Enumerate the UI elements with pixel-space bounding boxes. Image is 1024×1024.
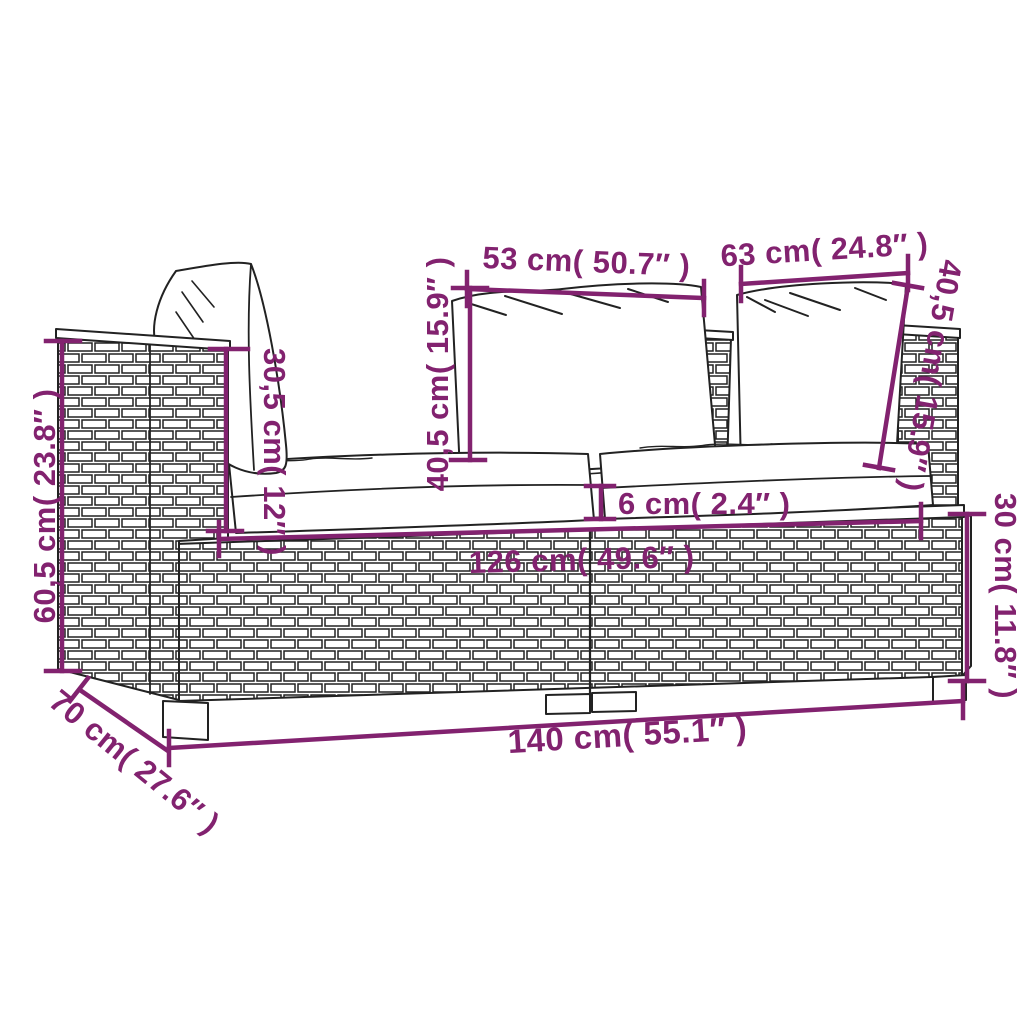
dim-label-40-5-mid: 40,5 cm( 15.9″ ) — [420, 257, 455, 492]
foot-middle-left — [546, 694, 590, 714]
dim-label-126: 126 cm( 49.6″ ) — [468, 539, 695, 580]
foot-middle-right — [592, 692, 636, 712]
dim-label-30: 30 cm( 11.8″ ) — [988, 493, 1023, 699]
product-dimension-diagram: 53 cm( 50.7″ ) 63 cm( 24.8″ ) 60,5 cm( 2… — [0, 0, 1024, 1024]
dim-label-6: 6 cm( 2.4″ ) — [618, 486, 790, 521]
sofa-illustration — [56, 263, 971, 740]
sofa-base — [176, 505, 971, 701]
dim-label-60-5: 60,5 cm( 23.8″ ) — [27, 389, 62, 624]
dim-label-30-5: 30,5 cm( 12″ ) — [257, 348, 292, 556]
sofa-diagram-svg: 53 cm( 50.7″ ) 63 cm( 24.8″ ) 60,5 cm( 2… — [0, 0, 1024, 1024]
